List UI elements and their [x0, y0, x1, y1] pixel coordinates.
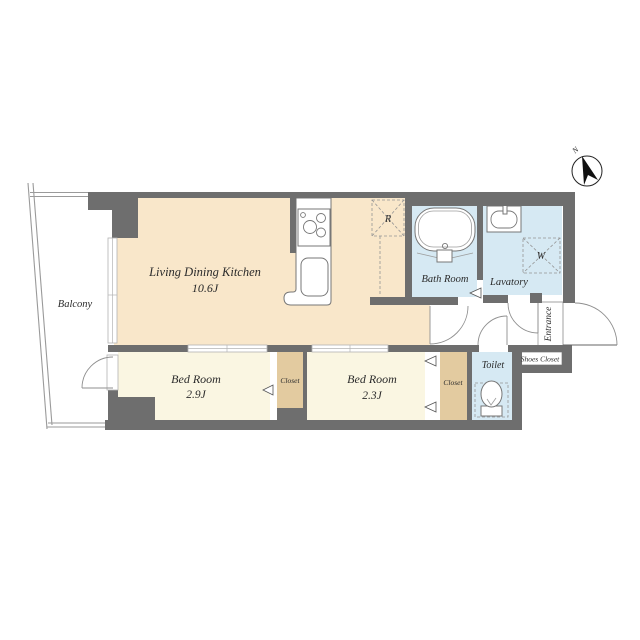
bedroom1-size-label: 2.9J [186, 389, 206, 401]
closet2-label: Closet [443, 378, 463, 387]
closet1-label: Closet [280, 376, 300, 385]
ldk-balcony-window [108, 238, 117, 343]
ldk-bedroom1-sliding-door [188, 345, 267, 352]
floor-plan-page: Balcony Living Dining Kitchen 10.6J Bed … [0, 0, 640, 640]
ldk-hall-extension-floor [405, 305, 430, 345]
refrigerator-label: R [384, 214, 391, 225]
entrance-door [563, 303, 617, 345]
lavatory-label: Lavatory [489, 277, 528, 288]
bedroom1-balcony-door-opening [107, 355, 118, 390]
toilet-label: Toilet [482, 360, 505, 371]
entrance-label: Entrance [544, 307, 554, 343]
balcony-label: Balcony [58, 299, 93, 310]
lavatory-sink [487, 205, 521, 232]
bedroom2-floor [307, 352, 425, 420]
kitchen-sink [301, 258, 328, 296]
closet1-door-strip [270, 352, 277, 408]
compass: N [570, 144, 602, 186]
ldk-bedroom2-sliding-door [312, 345, 388, 352]
kitchen-stove [298, 209, 330, 246]
bath-label: Bath Room [422, 274, 469, 285]
shoes-closet-label: Shoes Closet [521, 355, 560, 364]
bedroom2-label: Bed Room [347, 372, 397, 386]
floor-plan-canvas: Balcony Living Dining Kitchen 10.6J Bed … [0, 0, 640, 640]
ldk-label: Living Dining Kitchen [148, 265, 261, 279]
bedroom1-label: Bed Room [171, 372, 221, 386]
ldk-size-label: 10.6J [192, 281, 219, 295]
north-label: N [570, 144, 581, 155]
bedroom2-size-label: 2.3J [362, 390, 382, 402]
